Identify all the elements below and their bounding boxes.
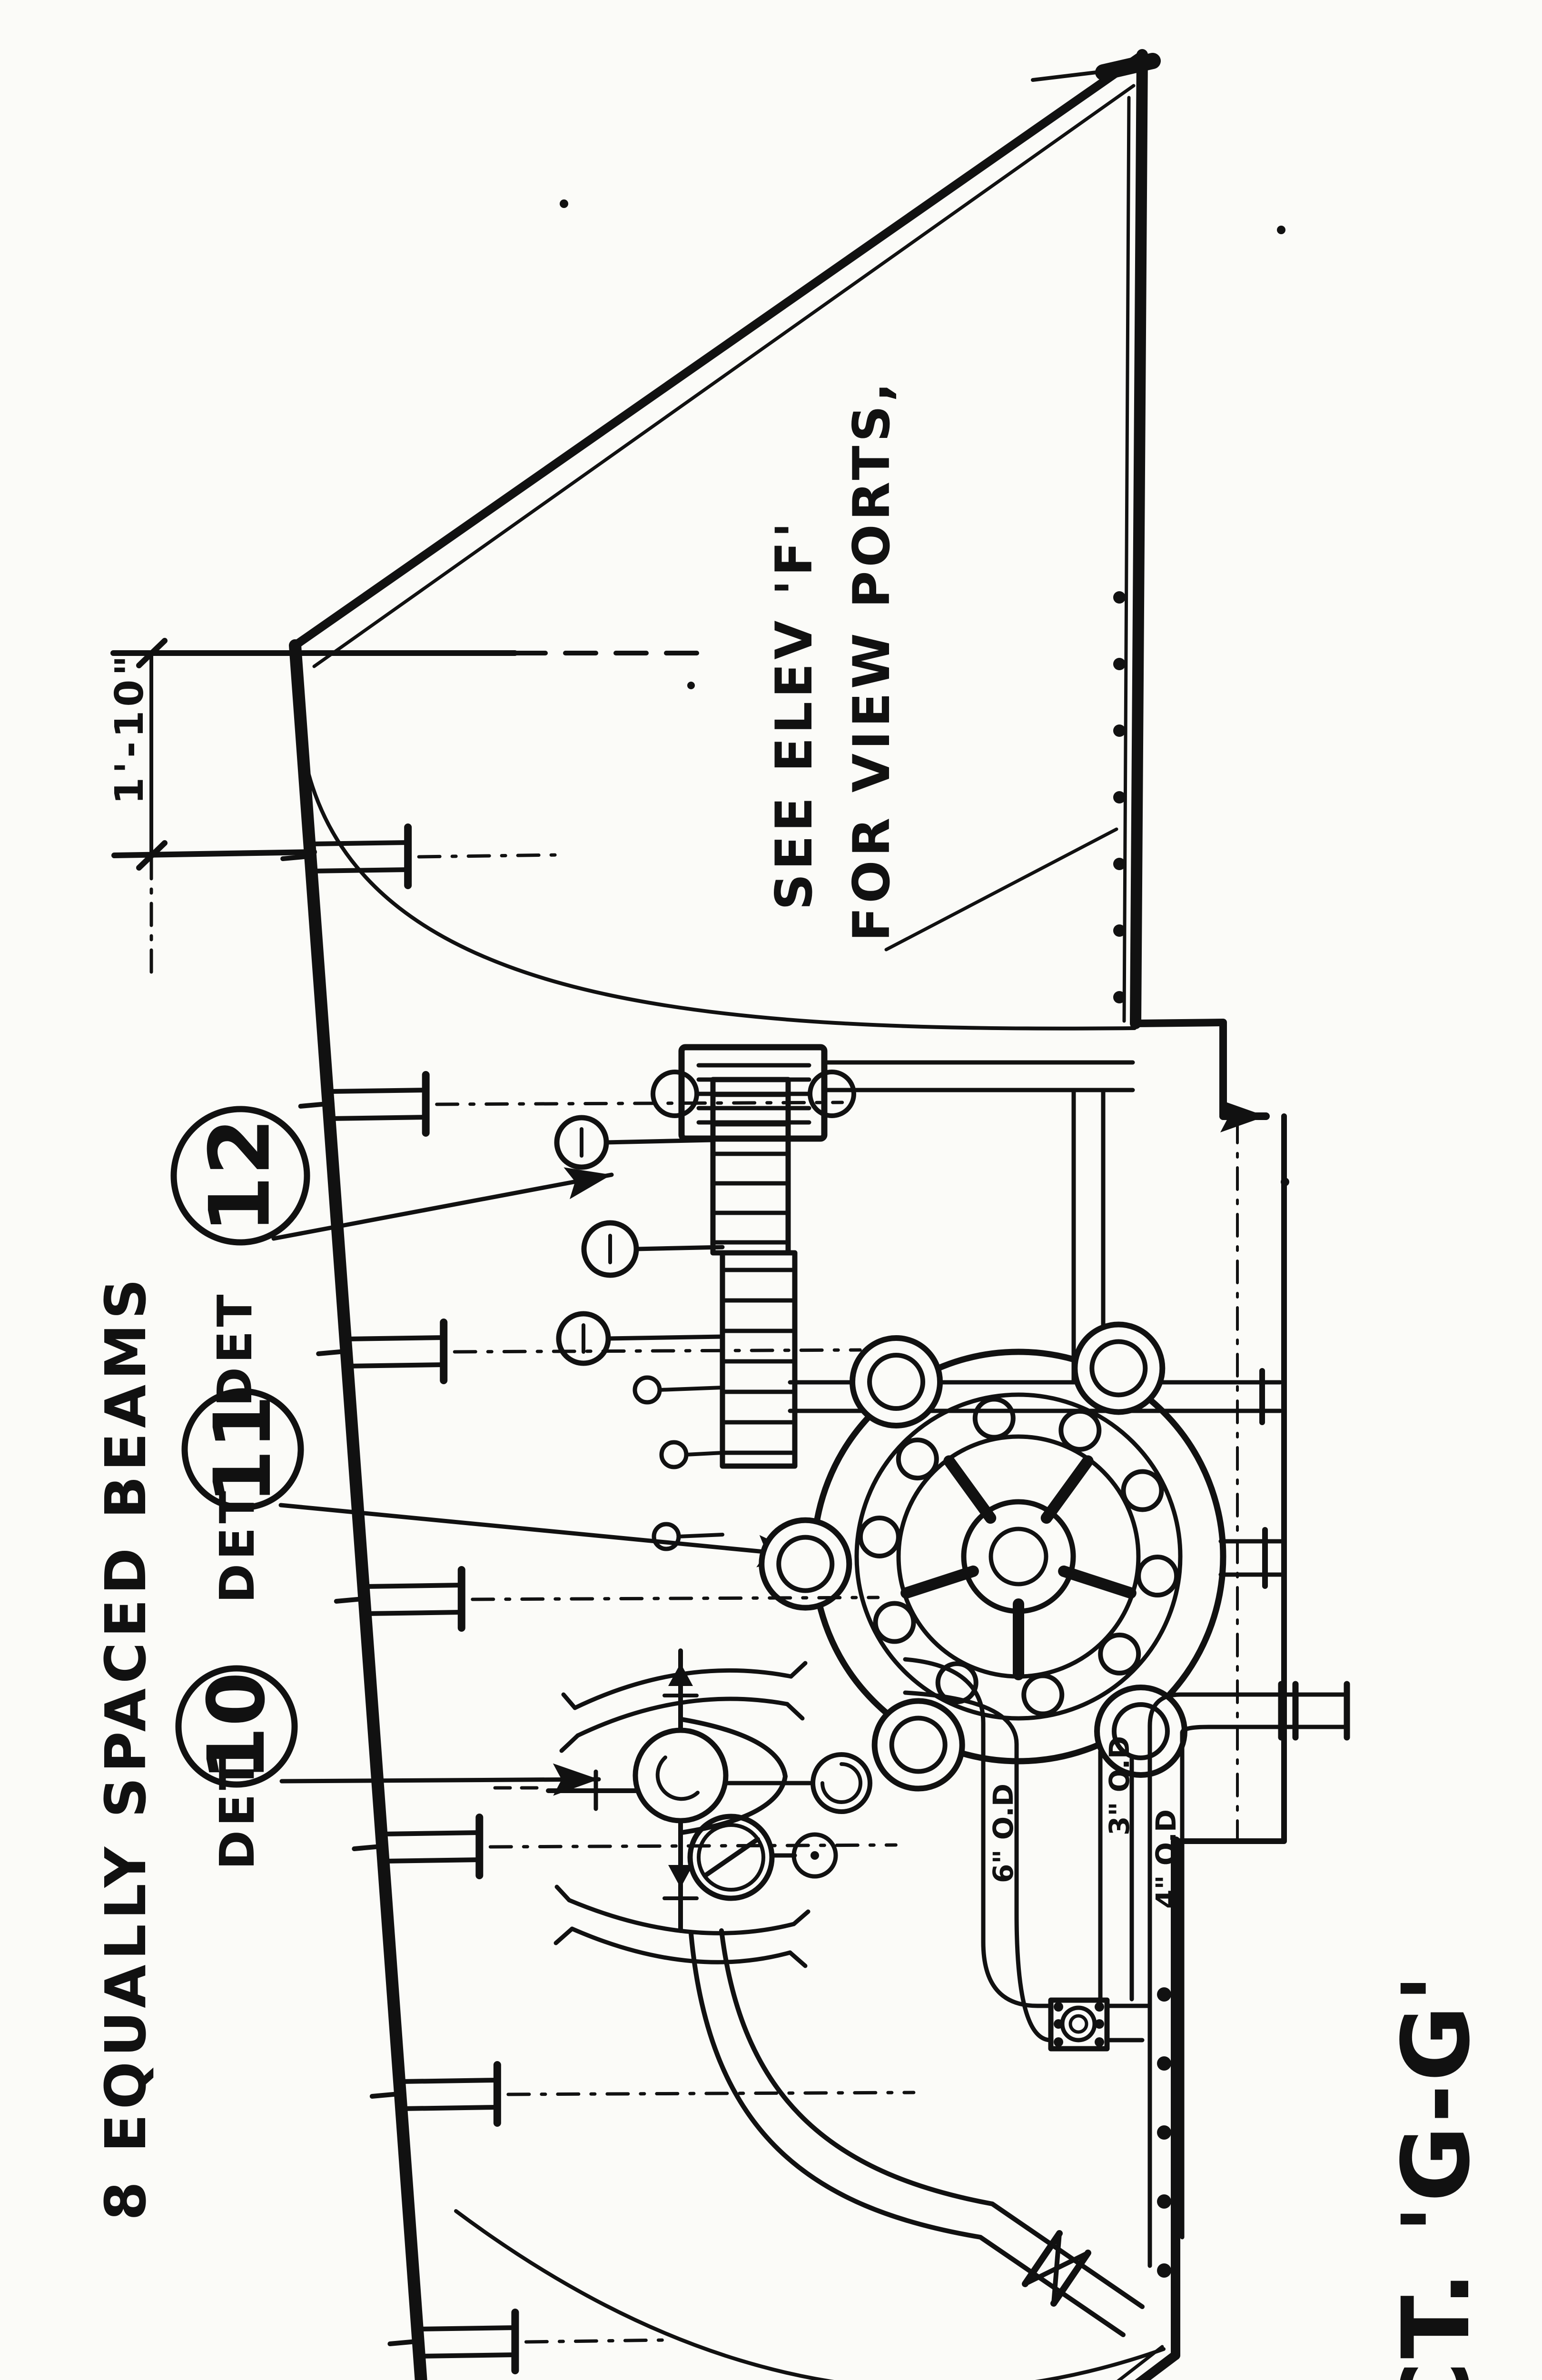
pipe-4-label: 4" O.D bbox=[1150, 1809, 1182, 1909]
section-drawing-canvas: 1'-10" 12" 8 EQUALLY SPACED BEAMS SEE EL… bbox=[0, 0, 1542, 2380]
apex-tail-line bbox=[1033, 71, 1104, 80]
detail-balloons: 12 DET 11 DET 10 DET bbox=[174, 1109, 803, 1870]
flanged-valve-box bbox=[1051, 2000, 1148, 2049]
beams-note: 8 EQUALLY SPACED BEAMS bbox=[93, 1274, 158, 2221]
hull-inner-plating-left bbox=[314, 86, 1134, 666]
view-ports-leader bbox=[886, 829, 1117, 950]
pump-body bbox=[761, 1324, 1281, 1788]
cross-valve bbox=[495, 1651, 870, 1966]
hull-top-right-edge bbox=[1136, 55, 1142, 1023]
hull-top-left-edge bbox=[295, 55, 1142, 645]
goose-neck-pipe bbox=[691, 1931, 1142, 2335]
hull-step-upper bbox=[1136, 1022, 1223, 1116]
hull-trunk bbox=[1176, 1116, 1284, 1841]
pipe-3-inch: 3" O.D bbox=[1100, 1736, 1136, 1999]
pipe-3-label: 3" O.D bbox=[1103, 1736, 1136, 1835]
hull-inner-plating-right bbox=[1124, 98, 1129, 1021]
apex-cap bbox=[1103, 61, 1153, 72]
det-11-prefix: DET bbox=[209, 1487, 265, 1603]
dim-top-text: 1'-10" bbox=[107, 652, 152, 804]
ref-line-first-beam bbox=[114, 852, 314, 855]
det-12-number: 12 bbox=[192, 1118, 289, 1234]
det-10-leader bbox=[282, 1779, 599, 1781]
deck-sweep-line bbox=[306, 762, 1135, 1029]
det-12-leader bbox=[274, 1175, 612, 1239]
view-ports-note-line1: SEE ELEV 'F' bbox=[765, 518, 823, 910]
det-10-prefix: DET bbox=[209, 1754, 265, 1870]
pipe-6-label: 6" O.D bbox=[987, 1784, 1019, 1883]
pump-hub bbox=[964, 1502, 1073, 1611]
section-title: SECT. 'G-G' bbox=[1382, 1971, 1490, 2380]
view-ports-note-line2: FOR VIEW PORTS, bbox=[842, 379, 901, 942]
